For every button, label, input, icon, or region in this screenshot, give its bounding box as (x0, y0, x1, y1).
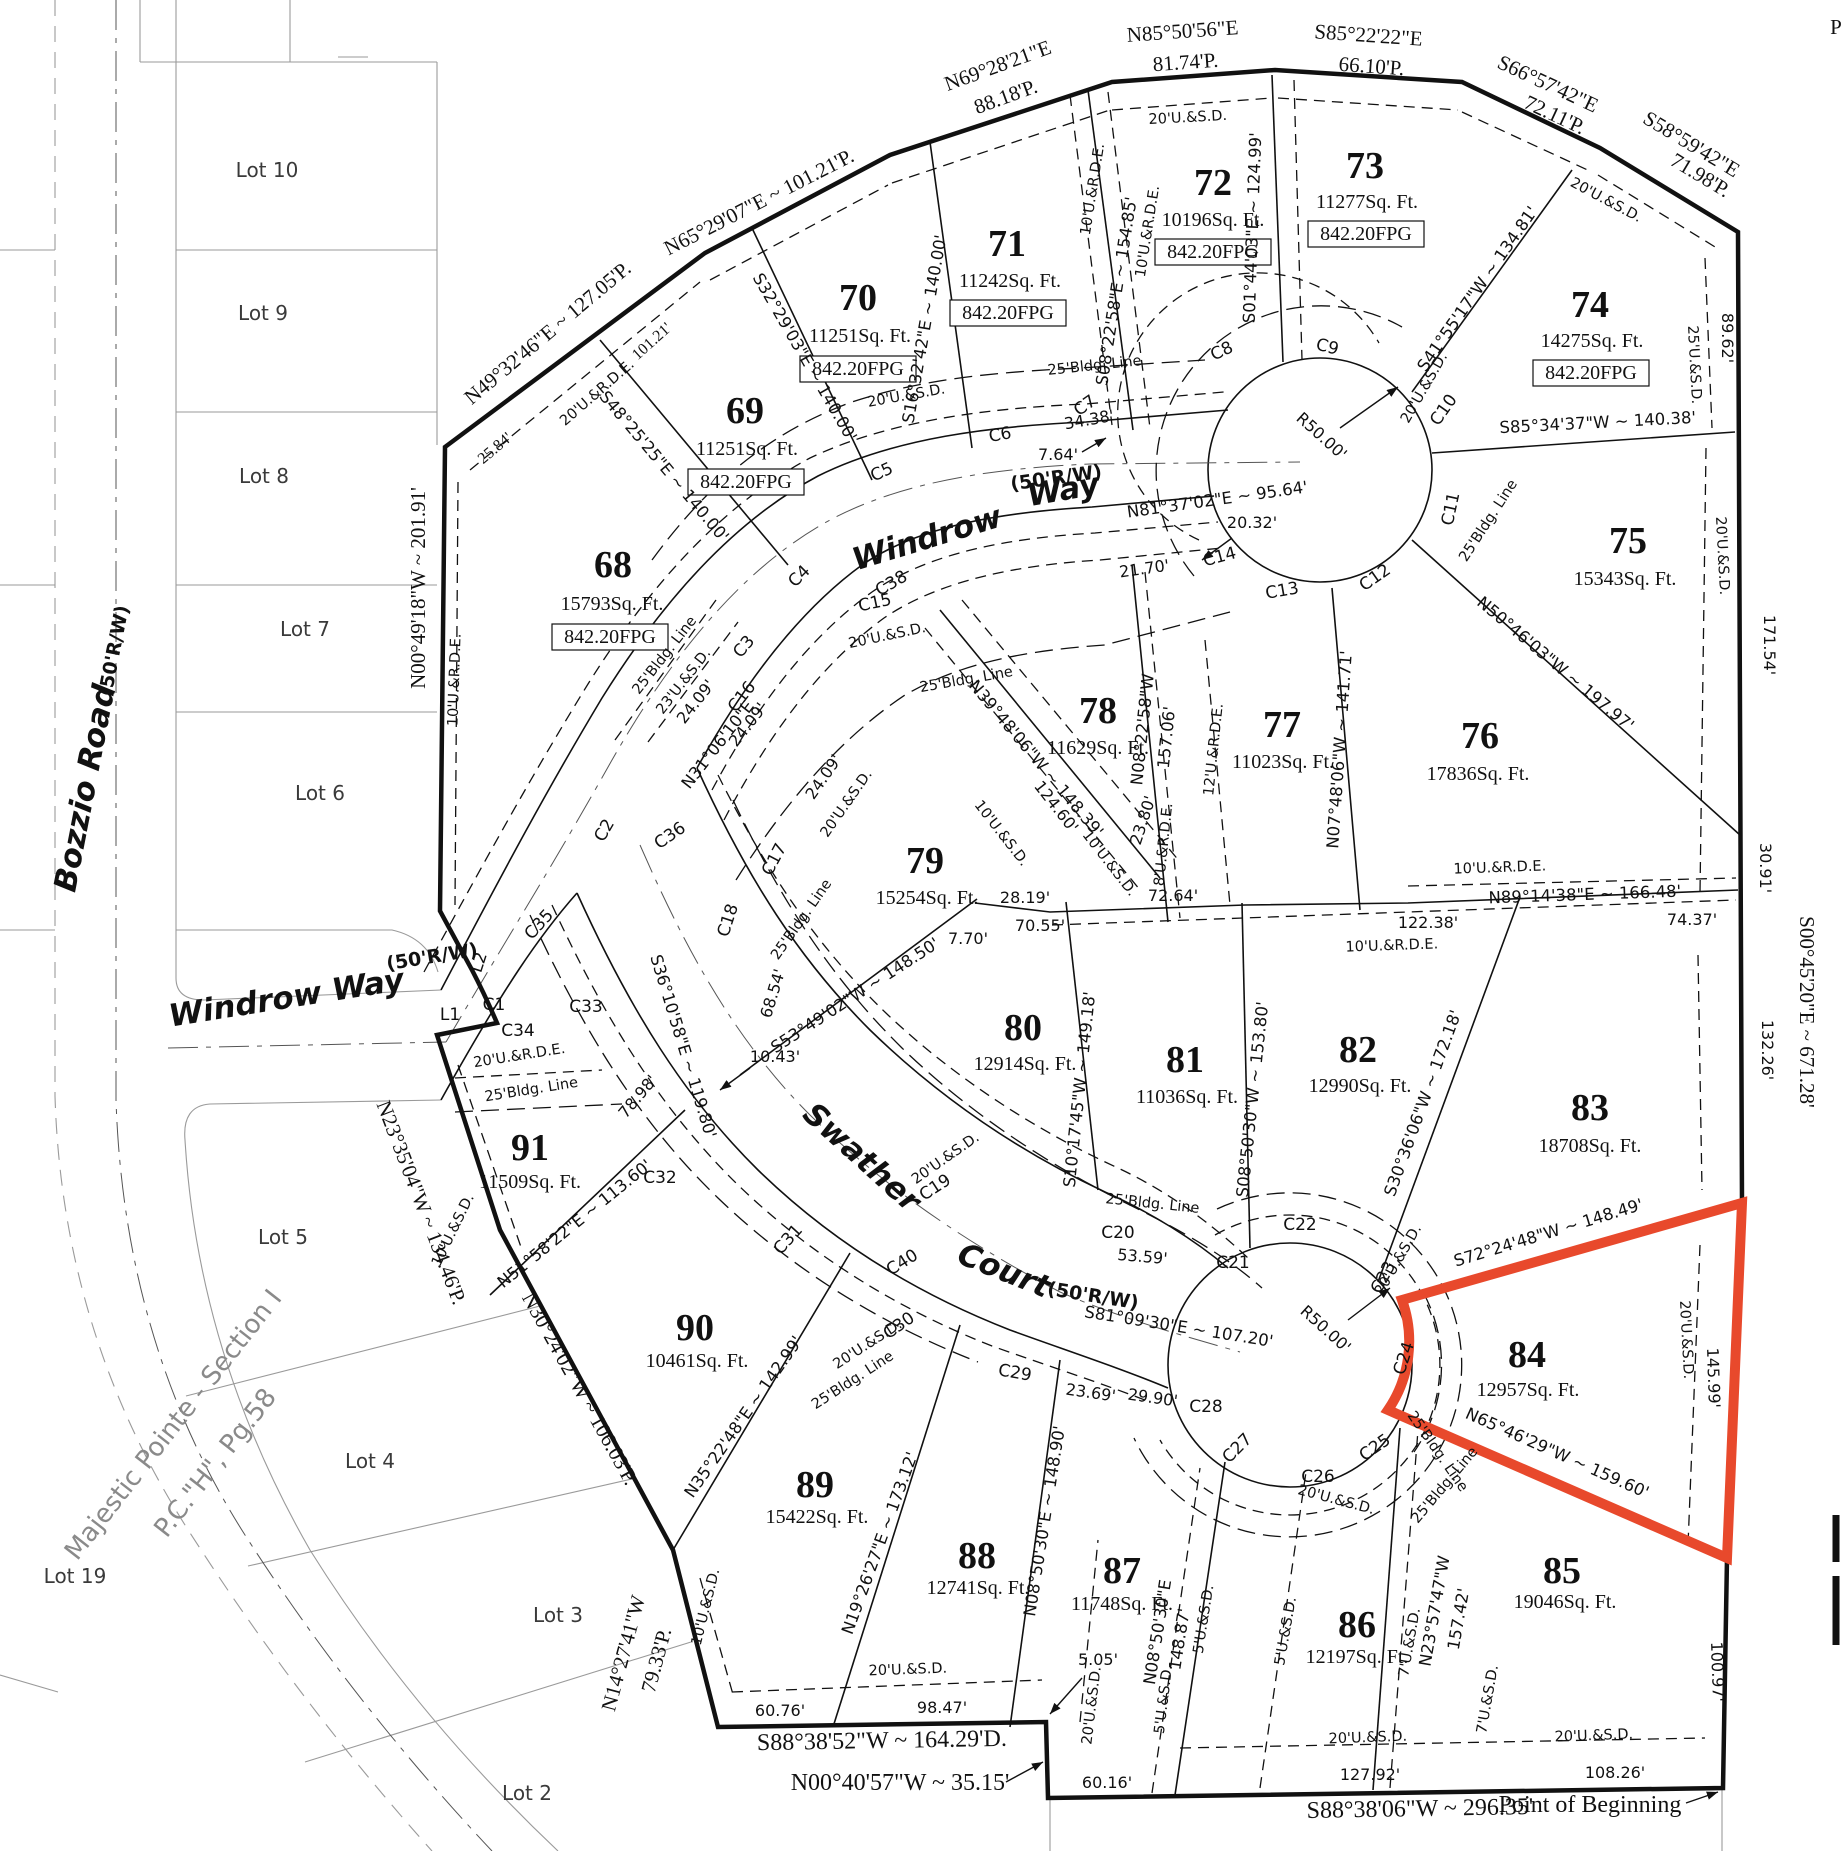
dim-label: 171.54' (1760, 615, 1779, 675)
curve-label: C12 (1356, 560, 1395, 596)
curve-label: C29 (997, 1360, 1033, 1386)
boundary-dim: 81.74'P. (1152, 48, 1219, 77)
curve-label: C31 (770, 1221, 807, 1259)
curve-label: C10 (1426, 391, 1462, 430)
boundary-dim: 25.84' (475, 429, 516, 467)
curve-label: C28 (1189, 1397, 1223, 1417)
dim-label: 30.91' (1756, 843, 1775, 893)
easement-label: 5'U.&S.D. (1272, 1596, 1300, 1667)
boundary-bearing: S00°45'20"E ~ 671.28' (1795, 916, 1819, 1108)
street-name-swather-2: Court (952, 1236, 1056, 1306)
lot-number: 78 (1079, 690, 1117, 732)
curve-label: C6 (987, 423, 1013, 447)
curve-label: C18 (714, 901, 743, 939)
curve-label: C9 (1314, 335, 1341, 360)
lot-area: 10461Sq. Ft. (646, 1350, 749, 1372)
easement-label: 20'U.&S.D. (1079, 1666, 1104, 1746)
easement-label: 20'U.&S.D. (1148, 108, 1227, 128)
lot-area: 12197Sq. Ft. (1306, 1646, 1409, 1668)
lot-area: 11251Sq. Ft. (809, 325, 911, 347)
easement-label: 20'U.&S.D. (1676, 1300, 1696, 1379)
curve-label: C21 (1216, 1253, 1250, 1273)
curve-label: C32 (643, 1168, 677, 1188)
curve-label: C27 (1219, 1430, 1257, 1468)
lot-area: 11251Sq. Ft. (696, 438, 798, 460)
lot-number: 86 (1338, 1604, 1376, 1646)
building-line-label: 25'Bldg. Line (484, 1075, 580, 1106)
dim-label: 24.09' (801, 751, 845, 803)
dim-label: 5.05' (1078, 1650, 1118, 1669)
lot-number: 85 (1543, 1550, 1581, 1592)
dim-label: 20.32' (1227, 513, 1277, 532)
lot-fpg: 842.20FPG (564, 626, 656, 648)
dim-label: 74.37' (1667, 910, 1717, 929)
building-line-label: 25'Bldg. Line (1456, 477, 1521, 565)
easement-label: 20'U.&S.D. (868, 1661, 947, 1680)
lot-number: 82 (1339, 1029, 1377, 1071)
lot-area: 11023Sq. Ft. (1232, 751, 1334, 773)
lot-number: 90 (676, 1307, 714, 1349)
lot-number: 74 (1571, 284, 1609, 326)
dim-label: 60.16' (1082, 1773, 1132, 1792)
lot-number: 73 (1346, 145, 1384, 187)
lot-number: 76 (1461, 715, 1499, 757)
lot-number-highlighted: 84 (1508, 1334, 1546, 1376)
lot-line-bearing: S53°49'02"W ~ 148.50' (767, 934, 942, 1057)
street-rw-bozzio: (50'R/W) (95, 604, 134, 699)
lot-number: 72 (1194, 162, 1232, 204)
adjacent-lot-label: Lot 3 (533, 1603, 583, 1627)
adjacent-lot-label: Lot 2 (502, 1781, 552, 1805)
street-name-bozzio: Bozzio Road (47, 681, 123, 895)
lot-line-bearing: S85°34'37"W ~ 140.38' (1499, 408, 1696, 437)
easement-label: 20'U.&S.D. (1296, 1482, 1376, 1518)
dim-label: 28.19' (1000, 888, 1050, 907)
boundary-bearing: N85°50'56"E (1126, 15, 1239, 47)
curve-label: C5 (867, 459, 896, 487)
boundary-bearing: S85°22'22"E (1314, 19, 1424, 50)
curve-label: C8 (1207, 338, 1236, 366)
lot-line-bearing: N07°48'06"W ~ 141.71' (1323, 650, 1356, 849)
easement-label: 12'U.&R.D.E. (1201, 703, 1227, 797)
lot-fpg: 842.20FPG (700, 471, 792, 493)
dim-label: 21.70' (1118, 556, 1170, 582)
easement-label: 20'U.&S.D. (1328, 1729, 1407, 1748)
lot-line-dim: 157.42' (1444, 1587, 1474, 1652)
lot-number: 87 (1103, 1550, 1141, 1592)
easement-label: 10'U.&R.D.E. (1453, 858, 1546, 877)
lot-line-bearing: S01°44'03"E ~ 124.99' (1240, 132, 1266, 323)
dim-label: 10.43' (750, 1047, 800, 1066)
easement-label: 7'U.&S.D. (1474, 1664, 1502, 1735)
easement-label: 25'U.&S.D. (1684, 325, 1704, 404)
dim-label: 122.38' (1398, 913, 1458, 932)
dim-label: 70.55' (1015, 916, 1065, 935)
lot-area: 15422Sq. Ft. (766, 1506, 869, 1528)
swather-court-lines (530, 768, 1462, 1537)
dim-label: 68.54' (756, 967, 789, 1021)
dim-label: 53.59' (1117, 1245, 1169, 1268)
lot-area: 19046Sq. Ft. (1514, 1591, 1617, 1613)
lot-area: 14275Sq. Ft. (1541, 330, 1644, 352)
dim-label: 72.64' (1148, 886, 1198, 905)
street-name-swather-1: Swather (796, 1096, 929, 1221)
plat-drawing: 68 15793Sq. Ft. 842.20FPG 69 11251Sq. Ft… (0, 0, 1844, 1851)
dim-label: 7.70' (948, 929, 988, 948)
dim-label: 89.62' (1718, 313, 1737, 363)
plat-map: 68 15793Sq. Ft. 842.20FPG 69 11251Sq. Ft… (0, 0, 1844, 1851)
lot-number: 75 (1609, 520, 1647, 562)
curve-label: C2 (590, 816, 619, 846)
boundary-bearing: N23°35'04"W ~ 134.46'P. (372, 1097, 472, 1308)
dim-label: 60.76' (755, 1701, 805, 1720)
lot-number: 70 (839, 277, 877, 319)
lot-fpg: 842.20FPG (962, 302, 1054, 324)
lot-number: 89 (796, 1464, 834, 1506)
boundary-bearing: N14°27'41"W (596, 1593, 650, 1714)
lot-area: 12914Sq. Ft. (974, 1053, 1077, 1075)
street-bearing: S81°09'30"E ~ 107.20' (1083, 1302, 1274, 1351)
easement-label: 20'U.&S.D. (1567, 175, 1644, 226)
lot-area: 15793Sq. Ft. (561, 593, 664, 615)
lot-area: 11277Sq. Ft. (1316, 191, 1418, 213)
adjacent-lot-label: Lot 9 (238, 301, 288, 325)
edge-cutoff-label: P (1830, 15, 1842, 39)
adjacent-lot-label: Lot 6 (295, 781, 345, 805)
lot-area: 11036Sq. Ft. (1136, 1086, 1238, 1108)
curve-label: C1 (483, 995, 506, 1015)
dim-label: 23.80' (1126, 793, 1160, 847)
lot-number: 69 (726, 390, 764, 432)
curve-label: C22 (1283, 1215, 1317, 1235)
boundary-dim: 66.10'P. (1338, 52, 1405, 81)
curve-label: C36 (651, 818, 690, 854)
curve-label: C33 (569, 997, 603, 1017)
dim-label: 145.99' (1703, 1347, 1724, 1408)
adjacent-lot-label: Lot 19 (44, 1564, 107, 1588)
lot-line-bearing: S08°50'30"W ~ 153.80' (1233, 1001, 1272, 1199)
easement-label: 10'U.&R.D.E. (1345, 936, 1438, 955)
lot-fpg: 842.20FPG (1320, 223, 1412, 245)
dim-label: 127.92' (1340, 1765, 1400, 1784)
adjacent-lot-label: Lot 10 (236, 158, 299, 182)
curve-label: C14 (1201, 543, 1239, 571)
lot-area: 17836Sq. Ft. (1427, 763, 1530, 785)
lot-number: 81 (1166, 1039, 1204, 1081)
lot-line-bearing: S41°55'17"W ~ 134.81' (1413, 203, 1541, 375)
boundary-bearing: N00°49'18"W ~ 201.91' (406, 487, 430, 689)
curve-label: C35 (521, 906, 558, 944)
lot-area: 11509Sq. Ft. (479, 1171, 581, 1193)
lot-fpg: 842.20FPG (1545, 362, 1637, 384)
lot-number: 88 (958, 1535, 996, 1577)
lot-area: 18708Sq. Ft. (1539, 1135, 1642, 1157)
curve-label: C4 (784, 561, 814, 591)
easement-label: 10'U.&R.D.E. (445, 633, 464, 726)
lot-line-bearing: N50°46'03"W ~ 197.97' (1473, 593, 1637, 735)
boundary-dim: 79.33'P. (636, 1625, 676, 1695)
boundary-bearing: N30°24'02"W ~ 106.03'P. (517, 1288, 643, 1489)
easement-label: 10'U.&S.D. (971, 798, 1032, 870)
easement-label: 20'U.&S.D. (847, 620, 927, 652)
lot-line-bearing: N08°50'30"E ~ 148.90' (1020, 1424, 1069, 1617)
curve-label: C3 (729, 632, 759, 662)
curve-label: C24 (1390, 1339, 1419, 1377)
curve-label: C13 (1264, 578, 1300, 604)
curve-label: C17 (758, 840, 791, 879)
street-rw-windrow-left: (50'R/W) (385, 939, 479, 975)
curve-label: L1 (440, 1005, 460, 1025)
dim-label: 100.97' (1707, 1641, 1728, 1702)
lot-number: 68 (594, 544, 632, 586)
point-of-beginning-label: Point of Beginning (1499, 1792, 1682, 1818)
curve-label: C40 (883, 1245, 922, 1280)
easement-label: 5'U.&S.D. (1191, 1584, 1218, 1655)
lot-number: 83 (1571, 1087, 1609, 1129)
lot-area: 15343Sq. Ft. (1574, 568, 1677, 590)
adjacent-lot-label: Lot 8 (239, 464, 289, 488)
dim-label: 78.98' (614, 1071, 661, 1122)
lot-number: 77 (1263, 704, 1301, 746)
adjacent-lot-label: Lot 4 (345, 1449, 395, 1473)
lot-number: 71 (988, 223, 1026, 265)
lot-number: 91 (511, 1127, 549, 1169)
dim-label: 7.64' (1038, 445, 1078, 464)
lot-number: 79 (906, 840, 944, 882)
boundary-dim: 101.21' (629, 320, 675, 364)
street-name-windrow-left: Windrow Way (166, 961, 408, 1034)
dim-label: 98.47' (917, 1698, 967, 1717)
adjacent-lot-label: Lot 7 (280, 617, 330, 641)
easement-label: 20'U.&S.D. (1554, 1727, 1633, 1746)
labels: 68 15793Sq. Ft. 842.20FPG 69 11251Sq. Ft… (44, 15, 1842, 1824)
street-name-windrow-1: Windrow (848, 499, 1006, 579)
easement-label: 20'U.&R.D.E. (472, 1041, 566, 1071)
lot-line-dim: 157.06' (1154, 705, 1179, 769)
lot-area: 11242Sq. Ft. (959, 270, 1061, 292)
curve-label: C11 (1438, 490, 1465, 527)
lot-line-bearing: S48°25'25"E ~ 140.00' (596, 387, 733, 545)
curve-label: C20 (1101, 1223, 1135, 1243)
lot-area: 15254Sq. Ft. (876, 887, 979, 909)
curve-label: C34 (501, 1021, 535, 1041)
lot-line-bearing: N19°26'27"E ~ 173.12' (838, 1449, 922, 1637)
bozzio-road-lines (55, 0, 558, 1851)
lot-line-bearing: S30°36'06"W ~ 172.18' (1380, 1007, 1465, 1198)
lot-line-bearing: S10°17'45"W ~ 149.18' (1060, 991, 1099, 1189)
radius-label: R50.00' (1297, 1301, 1355, 1356)
easement-label: 10'U.&S.D. (689, 1567, 724, 1647)
boundary-bearing: N00°40'57"W ~ 35.15' (791, 1770, 1010, 1796)
lot-area: 12741Sq. Ft. (927, 1577, 1030, 1599)
lot-area: 12957Sq. Ft. (1477, 1379, 1580, 1401)
adjacent-lot-label: Lot 5 (258, 1225, 308, 1249)
lot-number: 80 (1004, 1007, 1042, 1049)
building-line-label: 25'Bldg. Line (1105, 1191, 1200, 1217)
dim-label: 108.26' (1585, 1763, 1645, 1782)
easement-label: 20'U.&S.D. (1712, 516, 1732, 595)
dim-label: 132.26' (1758, 1020, 1777, 1080)
curve-label: C26 (1301, 1467, 1335, 1487)
dim-label: 23.69' (1065, 1380, 1117, 1406)
boundary-bearing: S88°38'52"W ~ 164.29'D. (757, 1726, 1007, 1756)
radius-label: R50.00' (1293, 408, 1351, 463)
lot-area: 12990Sq. Ft. (1309, 1075, 1412, 1097)
